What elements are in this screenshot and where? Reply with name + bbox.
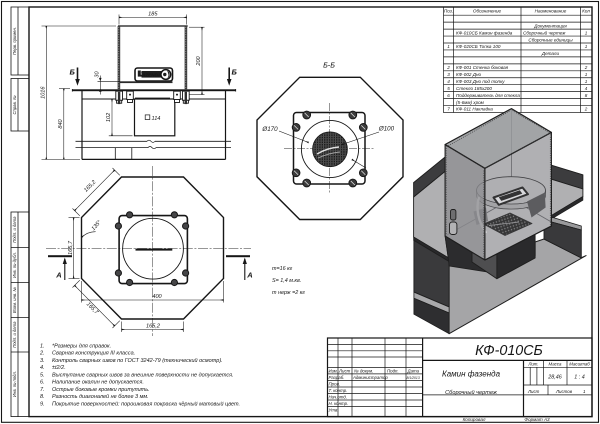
svg-text:Ø170: Ø170	[261, 126, 278, 133]
svg-text:Лист: Лист	[338, 368, 351, 373]
svg-text:114: 114	[152, 116, 161, 122]
svg-text:(5-6мм) хром: (5-6мм) хром	[456, 100, 485, 105]
svg-text:Взам. инв. №: Взам. инв. №	[12, 287, 17, 313]
svg-text:Ø100: Ø100	[378, 126, 395, 133]
svg-text:8.: 8.	[40, 394, 45, 400]
svg-text:1: 1	[447, 44, 450, 49]
svg-text:КФ-010СБ: КФ-010СБ	[475, 343, 543, 359]
svg-text:1: 1	[585, 44, 588, 49]
svg-text:Поз.: Поз.	[444, 9, 453, 14]
svg-text:5: 5	[447, 86, 450, 91]
svg-text:Налипание окалин не допускаетс: Налипание окалин не допускается.	[52, 380, 144, 386]
svg-text:185: 185	[148, 11, 158, 17]
svg-text:6: 6	[447, 93, 450, 98]
svg-text:9.: 9.	[40, 401, 45, 407]
svg-text:Детали: Детали	[541, 51, 560, 56]
svg-text:Поддерживатель для стекла: Поддерживатель для стекла	[456, 93, 520, 98]
svg-text:28,46: 28,46	[547, 375, 562, 381]
svg-text:1.: 1.	[40, 344, 45, 350]
svg-text:7.: 7.	[40, 387, 45, 393]
svg-text:Б: Б	[70, 68, 76, 77]
svg-text:Копировал: Копировал	[463, 417, 486, 422]
svg-text:№ докум.: № докум.	[354, 368, 373, 373]
svg-text:2: 2	[584, 65, 588, 70]
svg-text:3.: 3.	[40, 358, 45, 364]
svg-text:Стекло 185х200: Стекло 185х200	[456, 86, 492, 91]
svg-text:Справ. №: Справ. №	[12, 95, 17, 114]
svg-text:Нач.отд.: Нач.отд.	[329, 395, 348, 400]
svg-text:2.: 2.	[39, 351, 45, 357]
svg-text:КФ-002 Дно: КФ-002 Дно	[456, 72, 481, 77]
svg-text:Перв. примен.: Перв. примен.	[12, 27, 17, 55]
svg-text:Масса: Масса	[549, 362, 563, 367]
svg-text:2: 2	[584, 107, 588, 112]
svg-text:m=16 кг: m=16 кг	[272, 266, 293, 272]
svg-text:4: 4	[585, 86, 588, 91]
svg-text:400: 400	[152, 294, 162, 300]
svg-text:Сборочный чертеж: Сборочный чертеж	[523, 29, 566, 35]
svg-text:AZENDA: AZENDA	[141, 72, 161, 77]
svg-text:Подп.: Подп.	[387, 368, 399, 373]
svg-text:Инв. № подл.: Инв. № подл.	[12, 371, 17, 397]
svg-text:КФ-010СБ Камин фазенда: КФ-010СБ Камин фазенда	[456, 30, 513, 35]
svg-text:1 : 4: 1 : 4	[574, 375, 585, 381]
svg-text:1016: 1016	[40, 86, 46, 99]
svg-text:165,2: 165,2	[146, 324, 161, 330]
svg-text:*Размеры для справок.: *Размеры для справок.	[52, 344, 111, 350]
svg-text:2: 2	[446, 65, 450, 70]
svg-text:30: 30	[95, 71, 101, 78]
svg-text:Инв. № дубл.: Инв. № дубл.	[12, 252, 17, 278]
svg-text:102: 102	[106, 112, 112, 122]
svg-text:840: 840	[58, 118, 64, 128]
svg-text:1: 1	[585, 72, 588, 77]
svg-text:3: 3	[447, 72, 450, 77]
svg-text:КФ-001 Стенка боковая: КФ-001 Стенка боковая	[456, 65, 509, 70]
svg-text:S= 1,4 м.кв.: S= 1,4 м.кв.	[272, 278, 301, 284]
svg-text:1: 1	[585, 79, 588, 84]
svg-text:8: 8	[585, 93, 588, 98]
svg-text:Обозначение: Обозначение	[473, 9, 502, 14]
svg-text:Камин фазенда: Камин фазенда	[442, 370, 501, 379]
svg-text:1: 1	[585, 30, 588, 35]
svg-text:Документация: Документация	[533, 23, 567, 28]
svg-text:Листов: Листов	[555, 389, 573, 394]
svg-text:Дата: Дата	[407, 368, 420, 373]
svg-text:Острые боковые кромки притупит: Острые боковые кромки притупить.	[52, 387, 150, 393]
svg-text:m нерж =2 кг: m нерж =2 кг	[272, 290, 305, 296]
svg-text:7: 7	[447, 107, 450, 112]
svg-text:Кол: Кол	[582, 9, 590, 14]
svg-text:±t2/2.: ±t2/2.	[52, 365, 66, 371]
svg-text:Наименование: Наименование	[535, 9, 567, 14]
svg-text:Лит.: Лит.	[527, 362, 538, 367]
svg-text:Сборочные единицы: Сборочные единицы	[528, 37, 573, 42]
svg-text:Подп. и дата: Подп. и дата	[12, 321, 17, 348]
svg-text:Разность диагоналей не более 3: Разность диагоналей не более 3 мм.	[52, 393, 149, 400]
svg-text:8/1/2013: 8/1/2013	[407, 376, 420, 380]
svg-text:Масштаб: Масштаб	[569, 362, 590, 367]
svg-text:Администратор: Администратор	[352, 375, 388, 380]
svg-text:Формат А3: Формат А3	[524, 417, 550, 422]
svg-text:А: А	[246, 271, 252, 280]
svg-text:Утв.: Утв.	[329, 408, 339, 413]
svg-text:А: А	[55, 271, 61, 280]
svg-text:5.: 5.	[40, 372, 45, 378]
svg-text:Пров.: Пров.	[329, 382, 341, 387]
svg-text:Лист: Лист	[527, 389, 540, 394]
svg-text:Подп. и дата: Подп. и дата	[12, 216, 17, 243]
svg-text:Покрытие поверхностей: порошко: Покрытие поверхностей: порошковая покрас…	[52, 400, 240, 407]
svg-text:Сварная конструкция III класса: Сварная конструкция III класса.	[52, 351, 135, 357]
svg-text:Контроль сварных швов по ГОСТ: Контроль сварных швов по ГОСТ 3242-79 (т…	[52, 357, 223, 364]
svg-text:Выступание сварных швов за вне: Выступание сварных швов за внешние повер…	[52, 372, 234, 378]
svg-text:Б: Б	[232, 68, 238, 77]
svg-text:Н. контр.: Н. контр.	[329, 401, 349, 406]
svg-text:6.: 6.	[40, 380, 45, 386]
svg-text:165,7: 165,7	[68, 240, 74, 255]
svg-text:КФ-003 Дно под топку: КФ-003 Дно под топку	[456, 79, 505, 84]
svg-text:Разраб.: Разраб.	[329, 375, 345, 380]
svg-text:КФ-020СБ Топка 100: КФ-020СБ Топка 100	[456, 44, 501, 49]
svg-text:Б-Б: Б-Б	[323, 61, 335, 70]
svg-text:4: 4	[447, 79, 450, 84]
svg-text:Т. контр.: Т. контр.	[329, 388, 348, 393]
svg-text:200: 200	[196, 55, 202, 66]
svg-text:4.: 4.	[40, 365, 45, 371]
svg-text:Изм.: Изм.	[329, 368, 338, 373]
svg-text:КФ-011 Накладка: КФ-011 Накладка	[456, 107, 493, 112]
svg-text:Сборочный чертеж: Сборочный чертеж	[445, 389, 498, 396]
